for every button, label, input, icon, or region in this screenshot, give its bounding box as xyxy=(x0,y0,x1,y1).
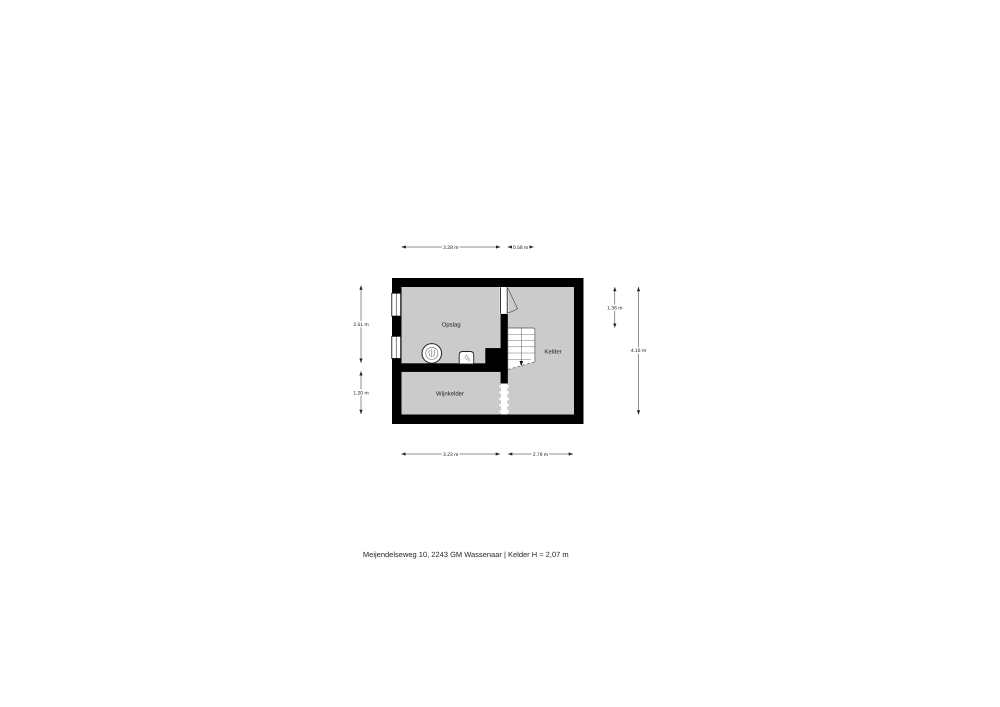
svg-text:1.36 m: 1.36 m xyxy=(607,305,622,311)
svg-text:Kelder: Kelder xyxy=(544,349,561,356)
svg-text:Meijendelseweg 10, 2243 GM Was: Meijendelseweg 10, 2243 GM Wassenaar | K… xyxy=(363,550,569,559)
svg-text:2.51 m: 2.51 m xyxy=(353,322,368,328)
svg-text:Wijnkelder: Wijnkelder xyxy=(436,390,464,397)
svg-text:1.20 m: 1.20 m xyxy=(353,390,368,396)
svg-text:3.23 m: 3.23 m xyxy=(443,452,458,458)
svg-text:4.16 m: 4.16 m xyxy=(631,348,646,354)
svg-text:3.28 m: 3.28 m xyxy=(443,245,458,251)
svg-text:0.58 m: 0.58 m xyxy=(513,245,528,251)
svg-text:2.79 m: 2.79 m xyxy=(533,452,548,458)
svg-text:Opslag: Opslag xyxy=(442,322,461,329)
